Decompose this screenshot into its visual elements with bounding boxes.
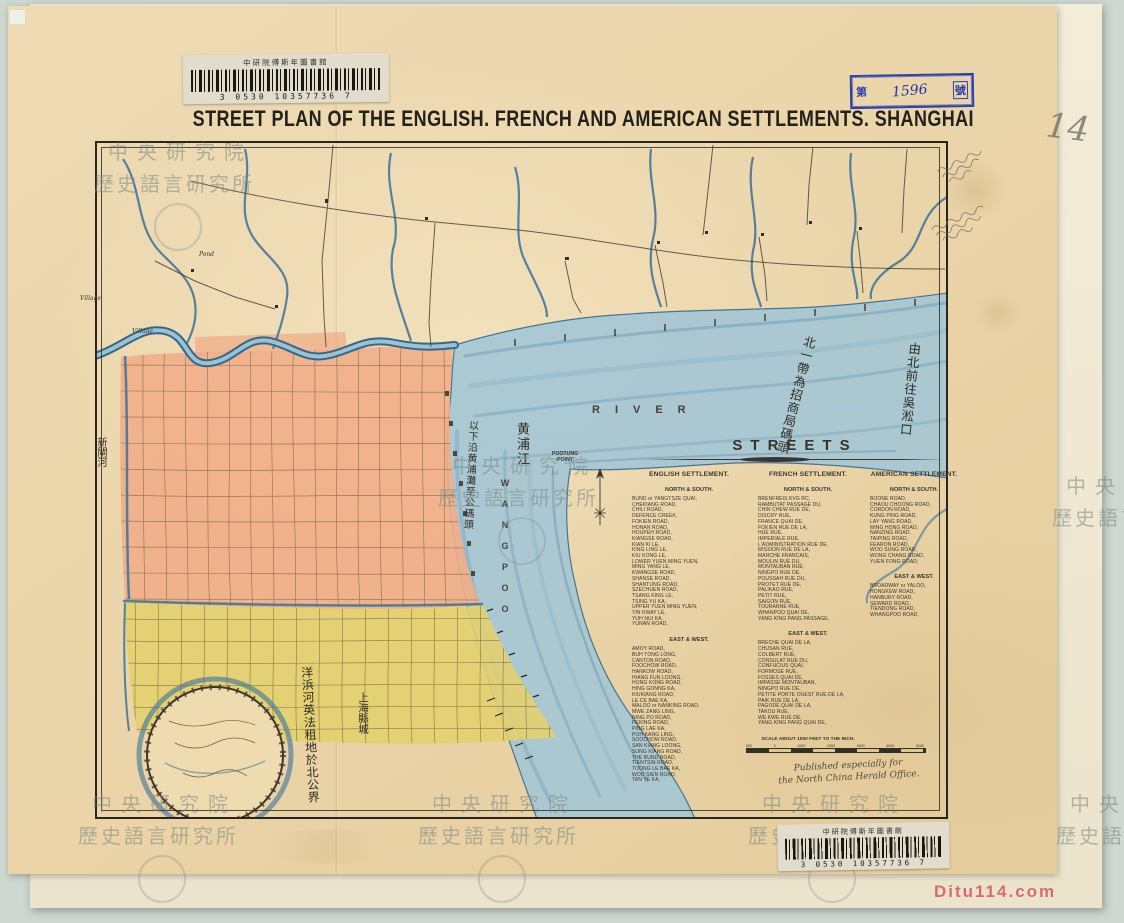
list-item: YANG KING PANG PASSAGE, — [758, 617, 864, 623]
site-credit: Ditu114.com — [934, 882, 1056, 902]
north-south-label: NORTH & SOUTH. — [626, 487, 752, 493]
library-barcode-sticker: 中研院傅斯年圖書館 3 0530 10357736 7 — [183, 53, 390, 104]
list-item: TAN YE KA, — [632, 778, 752, 784]
village-label: Village — [132, 328, 153, 335]
french-settlement-column: FRENCH SETTLEMENT. NORTH & SOUTH. BRENFR… — [752, 471, 864, 784]
walled-city-annotation: 上海縣城 — [356, 692, 371, 734]
french-east-west-list: BRECHE QUAI DE LA,CHUSAN RUE,COLBERT RUE… — [752, 641, 864, 727]
wangpoo-label: WANGPOO — [500, 478, 510, 625]
streets-columns: ENGLISH SETTLEMENT. NORTH & SOUTH. BUND … — [626, 471, 964, 784]
north-south-label: NORTH & SOUTH. — [864, 487, 964, 493]
french-north-south-list: BRENFREIS KVG RC,RAMBUTAT PASSAGE DU,CHI… — [752, 497, 864, 622]
column-title: ENGLISH SETTLEMENT. — [626, 471, 752, 478]
library-name-label: 中研院傅斯年圖書館 — [191, 56, 381, 69]
streets-divider — [645, 457, 945, 462]
soochow-creek-annotation: 新閘河 — [93, 437, 108, 467]
english-settlement-column: ENGLISH SETTLEMENT. NORTH & SOUTH. BUND … — [626, 471, 752, 784]
barcode — [191, 68, 381, 92]
english-north-south-list: BUND or YANGTSZE QUAI,CHEKIANG ROAD,CHIL… — [626, 497, 752, 628]
list-item: 2000 — [827, 744, 835, 748]
map-title: STREET PLAN OF THE ENGLISH. FRENCH AND A… — [95, 106, 946, 132]
stamp-number: 1596 — [892, 82, 929, 101]
list-item: YUNAN ROAD, — [632, 622, 752, 628]
compass-icon — [594, 468, 606, 525]
list-item: 0 — [774, 744, 776, 748]
list-item: 500 — [746, 744, 752, 748]
scale-note: SCALE ABOUT 1050 FEET TO THE INCH. — [752, 737, 864, 742]
north-south-label: NORTH & SOUTH. — [752, 487, 864, 493]
streets-index-panel: STREETS ENGLISH SETTLEMENT. NORTH & SOUT… — [626, 437, 964, 784]
east-west-label: EAST & WEST. — [752, 631, 864, 637]
paper-corner-chip — [10, 10, 25, 24]
english-settlement-area — [120, 346, 481, 609]
divider-ornament — [740, 457, 810, 462]
village-label: Village — [80, 295, 101, 302]
paper-stain — [250, 830, 400, 864]
barcode — [785, 836, 942, 860]
stamp-suffix: 號 — [953, 81, 968, 99]
list-item: YANG KING PANG QUAI DE, — [758, 721, 864, 727]
english-east-west-list: AMOY ROAD,BUH TONG LONG,CANTON ROAD,FOOC… — [626, 647, 752, 784]
barcode-number: 3 0530 10357736 7 — [785, 858, 942, 869]
list-item: WHANGPOO ROAD, — [870, 613, 964, 619]
column-title: FRENCH SETTLEMENT. — [752, 471, 864, 478]
list-item: 1000 — [797, 744, 805, 748]
paper-stain — [975, 290, 1021, 336]
east-west-label: EAST & WEST. — [626, 637, 752, 643]
streets-heading: STREETS — [626, 437, 964, 454]
column-title: AMERICAN SETTLEMENT. — [864, 471, 964, 478]
river-label: RIVER — [592, 404, 701, 416]
american-north-south-list: BOONE ROAD,CHAOU CHOONG ROAD,CORDON ROAD… — [864, 497, 964, 565]
accession-number-stamp: 第 1596 號 — [850, 73, 975, 109]
list-item: YUEN FONG ROAD, — [870, 560, 964, 566]
chinese-walled-city — [139, 679, 291, 819]
barcode-number: 3 0530 10357736 7 — [191, 91, 381, 102]
pencil-page-number: 14 — [1044, 106, 1092, 151]
huangpu-river-annotation: 黄浦江 — [512, 422, 531, 467]
scanned-map-photo: STREET PLAN OF THE ENGLISH. FRENCH AND A… — [0, 0, 1124, 923]
stamp-prefix: 第 — [856, 84, 867, 100]
library-barcode-sticker: 中研院傅斯年圖書館 3 0530 10357736 7 — [777, 822, 950, 872]
american-settlement-column: AMERICAN SETTLEMENT. NORTH & SOUTH. BOON… — [864, 471, 964, 784]
american-east-west-list: BROADWAY or YALOO,HONGKEW ROAD,HANBURY R… — [864, 584, 964, 618]
pootung-point-label: POOTUNG POINT — [544, 451, 586, 463]
east-west-label: EAST & WEST. — [864, 574, 964, 580]
pond-label: Pond — [199, 251, 214, 258]
pencil-notes-illegible — [926, 146, 1030, 258]
